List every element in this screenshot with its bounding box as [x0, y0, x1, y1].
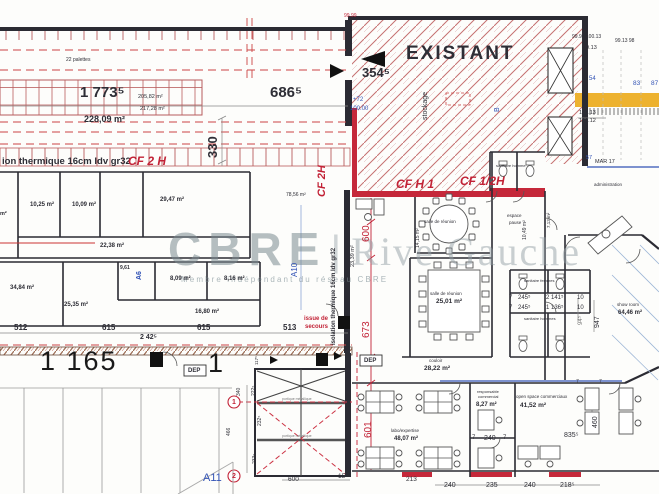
- room-commercial: commercial: [478, 395, 498, 399]
- dim-7-c: 7: [472, 435, 475, 441]
- survey-10012: 100.12: [579, 119, 596, 125]
- area-3484: 34,84 m²: [10, 285, 34, 291]
- room-couloir: couloir: [429, 359, 442, 364]
- dim-947: 947: [594, 316, 601, 328]
- room-sanitaire-top: sanitaire homme: [496, 164, 526, 168]
- area-228: 228,09 m²: [84, 115, 125, 124]
- area-1009: 10,09 m²: [72, 202, 96, 208]
- dim-460: 460: [592, 416, 599, 428]
- dim-466: 466: [227, 428, 232, 436]
- dim-222: 222⁵: [252, 386, 257, 396]
- level-10000: 100.00: [350, 106, 368, 112]
- room-espace: espace: [507, 214, 522, 219]
- dim-601-red: 601: [364, 421, 374, 438]
- room-pause: pause: [509, 221, 521, 226]
- dim-673-red: 673: [362, 321, 372, 338]
- grid-bubble-1: 1: [232, 399, 236, 406]
- room-salle-reunion-2: salle de réunion: [430, 292, 462, 297]
- survey-10013: 100.13: [579, 111, 596, 117]
- area-1680: 16,80 m²: [195, 309, 219, 315]
- dim-7-f: 7: [599, 380, 602, 385]
- axis-b-label: B: [494, 107, 501, 112]
- dim-615-b: 615: [197, 324, 210, 332]
- dim-213: 213: [406, 477, 417, 484]
- grid-bubble-2: 2: [232, 473, 236, 480]
- dim-1773: 1 773⁵: [80, 85, 125, 100]
- dim-354: 354⁵: [362, 66, 390, 79]
- survey-54: 54: [589, 76, 596, 82]
- area-4152: 41,52 m²: [520, 403, 546, 410]
- survey-row2: 99.13 98: [615, 39, 634, 44]
- issue-secours-2: secours: [305, 324, 328, 330]
- dim-240-bottom-a: 240: [444, 482, 456, 489]
- cf-h1-label: CF H 1: [396, 178, 434, 190]
- dim-615-a: 615: [102, 324, 115, 332]
- room-labo: labo/expertise: [391, 429, 419, 434]
- portique-label-2: portique métallique: [282, 435, 312, 439]
- dim-7-a: 7: [509, 295, 512, 301]
- area-217: 217,28 m²: [140, 107, 165, 113]
- area-2947: 29,47 m²: [160, 197, 184, 203]
- insulation-vertical: isolation thermique 16cm ldv gr32: [331, 248, 337, 345]
- area-2822: 28,22 m²: [424, 366, 450, 373]
- area-1049: 10,49 m²: [523, 220, 528, 240]
- area-2238: 22,38 m²: [100, 243, 124, 249]
- dim-512: 512: [14, 324, 27, 332]
- area-partial: m²: [0, 212, 7, 218]
- dim-240-bottom-b: 240: [524, 482, 536, 489]
- area-827: 8,27 m²: [476, 402, 497, 408]
- dim-233: 233⁵: [253, 454, 258, 464]
- cf-2h-label: CF 2 H: [128, 155, 166, 167]
- dim-245-b: 245⁵: [518, 305, 531, 311]
- area-6446: 64,46 m²: [618, 310, 642, 316]
- area-7856: 78,56 m²: [286, 193, 306, 198]
- area-816: 8,16 m²: [224, 276, 245, 282]
- dim-7-d: 7: [503, 435, 506, 441]
- portique-label-1: portique métallique: [282, 398, 312, 402]
- room-administration: administration: [594, 183, 622, 188]
- cf-half-h-label: CF 1/2H: [460, 175, 505, 187]
- dim-1136: 1 136⁵: [546, 305, 564, 311]
- survey-mar: MAR 17: [595, 160, 615, 166]
- dim-10-a: 10: [577, 295, 584, 301]
- stockage-label: stockage: [422, 92, 429, 120]
- area-1415: 14,15 m²: [416, 228, 421, 248]
- room-sanitaire-femmes: sanitaire femmes: [524, 279, 554, 283]
- dim-15: 15⁵: [338, 474, 348, 481]
- dim-10-b: 10: [577, 305, 584, 311]
- survey-row1: 99.99 100.13: [572, 35, 601, 40]
- dim-330: 330: [206, 136, 219, 158]
- axis-a10: A10: [291, 263, 299, 277]
- dim-340: 340: [237, 388, 242, 396]
- dim-2425: 2 42⁵: [140, 334, 157, 341]
- area-809: 8,09 m²: [170, 276, 191, 282]
- insulation-note: ion thermique 16cm ldv gr32: [2, 157, 131, 167]
- floor-plan-linework: [0, 0, 659, 494]
- survey-87: 87: [651, 81, 658, 88]
- survey-57: 57: [586, 156, 592, 162]
- dim-686: 686⁵: [270, 85, 302, 100]
- dim-232: 232⁵: [258, 416, 263, 426]
- dim-513: 513: [283, 324, 296, 332]
- area-2535: 25,35 m²: [64, 302, 88, 308]
- bay-number: 1: [208, 350, 225, 377]
- survey-9913: 99.13: [583, 46, 597, 52]
- dim-117: 117⁵: [255, 356, 260, 365]
- dim-94: 94⁵: [578, 316, 584, 325]
- area-2339: 23,39 m²: [351, 245, 357, 267]
- axis-a11: A11: [203, 473, 222, 484]
- dim-218: 218⁵: [560, 482, 575, 489]
- dep-box-label-2: DEP: [364, 358, 376, 364]
- dim-235-bottom: 235: [486, 482, 498, 489]
- floor-plan-scan: CBRE | Rive Gauche Membre indépendant du…: [0, 0, 659, 494]
- area-4807: 48,07 m²: [394, 436, 418, 442]
- dep-box-label: DEP: [188, 368, 200, 374]
- room-show-room: show room: [617, 303, 639, 308]
- survey-83: 83: [633, 81, 640, 88]
- dim-7-e: 7: [576, 380, 579, 385]
- issue-secours-1: issue de: [304, 316, 328, 322]
- cf-2h-vertical: CF 2H: [317, 165, 328, 197]
- dim-7-b: 7: [509, 305, 512, 311]
- area-205: 205,82 m²: [138, 95, 163, 101]
- dim-835: 835⁵: [564, 432, 579, 439]
- palettes-note: 22 palettes: [66, 58, 90, 63]
- axis-a6: A6: [136, 271, 143, 280]
- room-open-space: open space commerciaux: [516, 395, 567, 400]
- area-961: 9,61: [120, 266, 130, 271]
- area-1025: 10,25 m²: [30, 202, 54, 208]
- dim-2141: 2 141⁵: [546, 295, 564, 301]
- existant-title: EXISTANT: [406, 44, 515, 63]
- dim-245-a: 245⁵: [518, 295, 531, 301]
- dim-600-red: 600: [362, 225, 372, 242]
- room-sanitaire-hommes: sanitaire hommes: [524, 317, 556, 321]
- level-plus72: +72: [353, 97, 363, 103]
- dim-1165: 1 165: [40, 348, 118, 375]
- room-salle-reunion-1: salle de réunion: [424, 220, 456, 225]
- area-713: 7,13 m²: [547, 213, 552, 228]
- elev-9999: 99.99: [344, 14, 357, 19]
- dim-240-mid: 240: [484, 435, 496, 442]
- area-2501: 25,01 m²: [436, 299, 462, 306]
- dim-600-shed: 600: [288, 477, 299, 484]
